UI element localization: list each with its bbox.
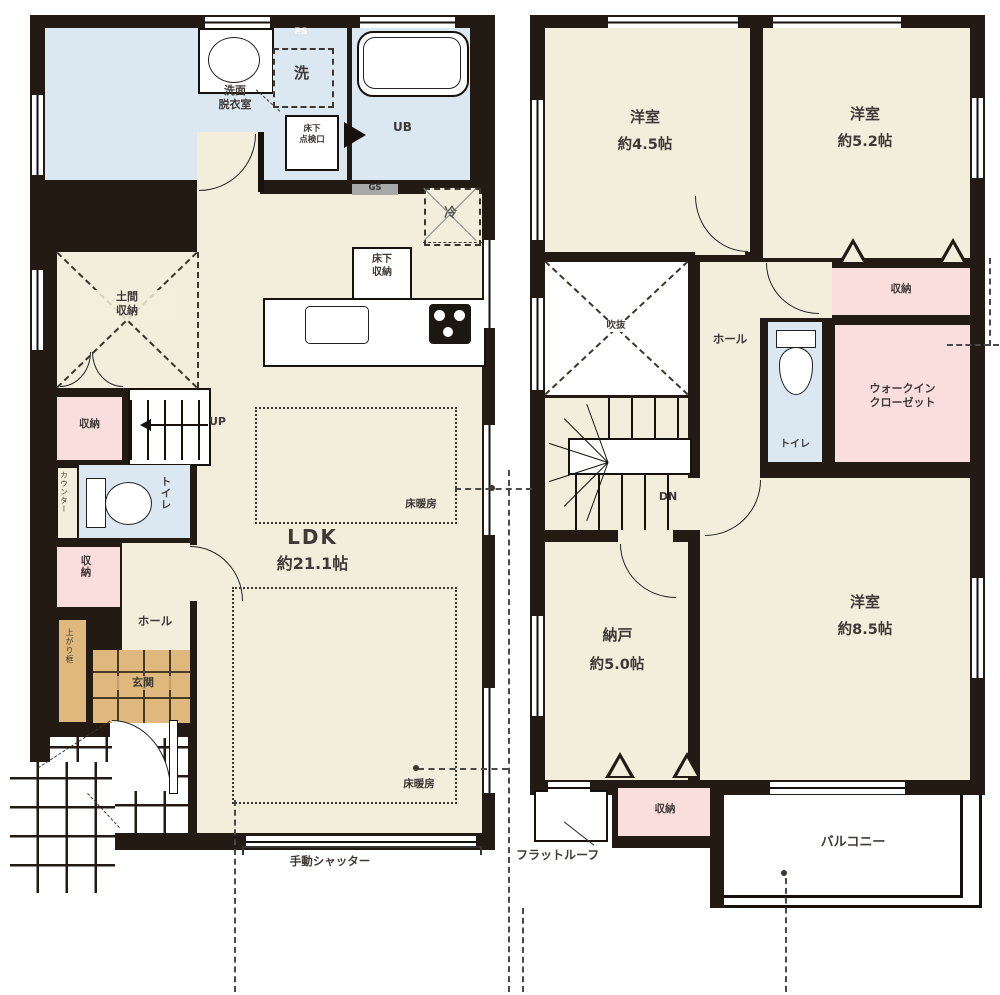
guide-line [418,768,508,770]
stove-burner [443,327,453,337]
toilet2-label: トイレ [768,438,822,451]
guide-line [989,258,991,346]
guide-line [785,878,787,992]
closet-door-icon-inner [843,244,863,262]
leader-dot [489,485,495,491]
window [32,270,43,350]
window [484,240,495,328]
floor-heating-label: 床暖房 [390,498,452,512]
fridge-label: 冷 [424,206,477,223]
ps-label: PS [288,27,314,39]
guide-line [234,800,236,992]
hall2-label: ホール [690,332,770,347]
washroom-label: 洗面 脱衣室 [190,84,280,113]
window [548,782,590,794]
hall-room [122,543,190,650]
up-arrow-icon [140,419,151,431]
storage-top-2f-label: 収納 [832,283,970,297]
floor-plan: 土間 収納 収納 UP カウンター トイレ 収納 ホール 玄関 上がり框 洗 洗… [0,0,1000,995]
closet-door-icon-inner [610,758,630,776]
storage-upper-label: 収納 [57,418,122,432]
guide-line [522,908,524,992]
storeroom-size: 約5.0帖 [557,656,677,675]
storeroom-door-gap [618,530,673,544]
entrance-door-leaf [169,720,178,794]
guide-line [947,344,999,346]
window [360,17,455,28]
toilet-tank [86,478,106,528]
bedroom-b-size: 約5.2帖 [805,133,925,152]
closet-door-icon-inner [943,244,963,262]
stairs-down-treads-top [608,398,688,438]
balcony-post [710,782,724,908]
bedroom-a-name: 洋室 [605,108,685,128]
leader-dot [413,765,419,771]
bath-label: UB [375,120,430,136]
storage-bottom-2f-label: 収納 [618,803,712,817]
shutter-label: 手動シャッター [240,854,420,869]
toilet2-tank [776,330,816,348]
window [532,616,543,716]
doma-storage-label: 土間 収納 [77,290,177,319]
counter-label: カウンター [60,471,68,514]
gs-label: GS [352,183,398,194]
storage-lower-label: 収納 [80,555,91,578]
toilet-bowl [105,482,152,525]
window [532,100,543,240]
storeroom-name: 納戸 [585,626,650,646]
vanity-basin [208,37,260,83]
flat-roof-box [534,790,608,842]
stove-burner [454,310,465,321]
bath-door-icon [344,122,366,148]
up-arrow-line [150,424,208,426]
window [608,17,738,28]
window [484,688,495,793]
stove-icon [429,304,471,344]
balcony-rail-bottom [724,905,982,908]
stairs-up-label: UP [209,415,239,429]
window [773,17,901,28]
washer-label: 洗 [273,64,330,84]
atrium-void-label: 吹抜 [586,320,646,332]
window [484,425,495,535]
agari-kamachi-label: 上がり框 [65,628,73,664]
stove-burner [434,310,445,321]
leader-dot [781,870,787,876]
bedroom-c-name: 洋室 [825,593,905,613]
window [32,95,43,175]
entrance-label: 玄関 [103,676,183,690]
kitchen-boundary [423,242,487,243]
window [972,98,983,178]
walk-in-closet-label: ウォークイン クローゼット [835,382,970,411]
guide-line [508,470,510,992]
bedroom-a-size: 約4.5帖 [585,136,705,155]
bedroom-c-size: 約8.5帖 [805,621,925,640]
washroom-door-leaf [258,132,264,192]
toilet-label: トイレ [160,476,171,511]
window [205,17,270,28]
floor-heating-area-2 [232,587,457,804]
porch-tiles-lower [10,762,115,893]
balcony-label: バルコニー [788,835,918,852]
hall-label: ホール [115,614,195,629]
closet-door-icon-inner [677,758,697,776]
ldk-name-label: LDK [255,524,370,550]
underfloor-storage-label: 床下 収納 [352,253,412,279]
window [532,298,543,390]
flat-roof-label: フラットルーフ [516,848,666,864]
balcony-rail-right [979,795,982,908]
kitchen-sink [305,306,369,344]
bedroom-b-name: 洋室 [825,105,905,125]
window [972,578,983,678]
stairs-down-label: DN [648,490,688,504]
inspection-hatch-label: 床下 点検口 [285,124,339,146]
bathtub-inner [363,37,461,89]
ldk-size-label: 約21.1帖 [245,554,380,575]
floor-heating-label: 床暖房 [388,778,450,792]
window [770,782,905,794]
